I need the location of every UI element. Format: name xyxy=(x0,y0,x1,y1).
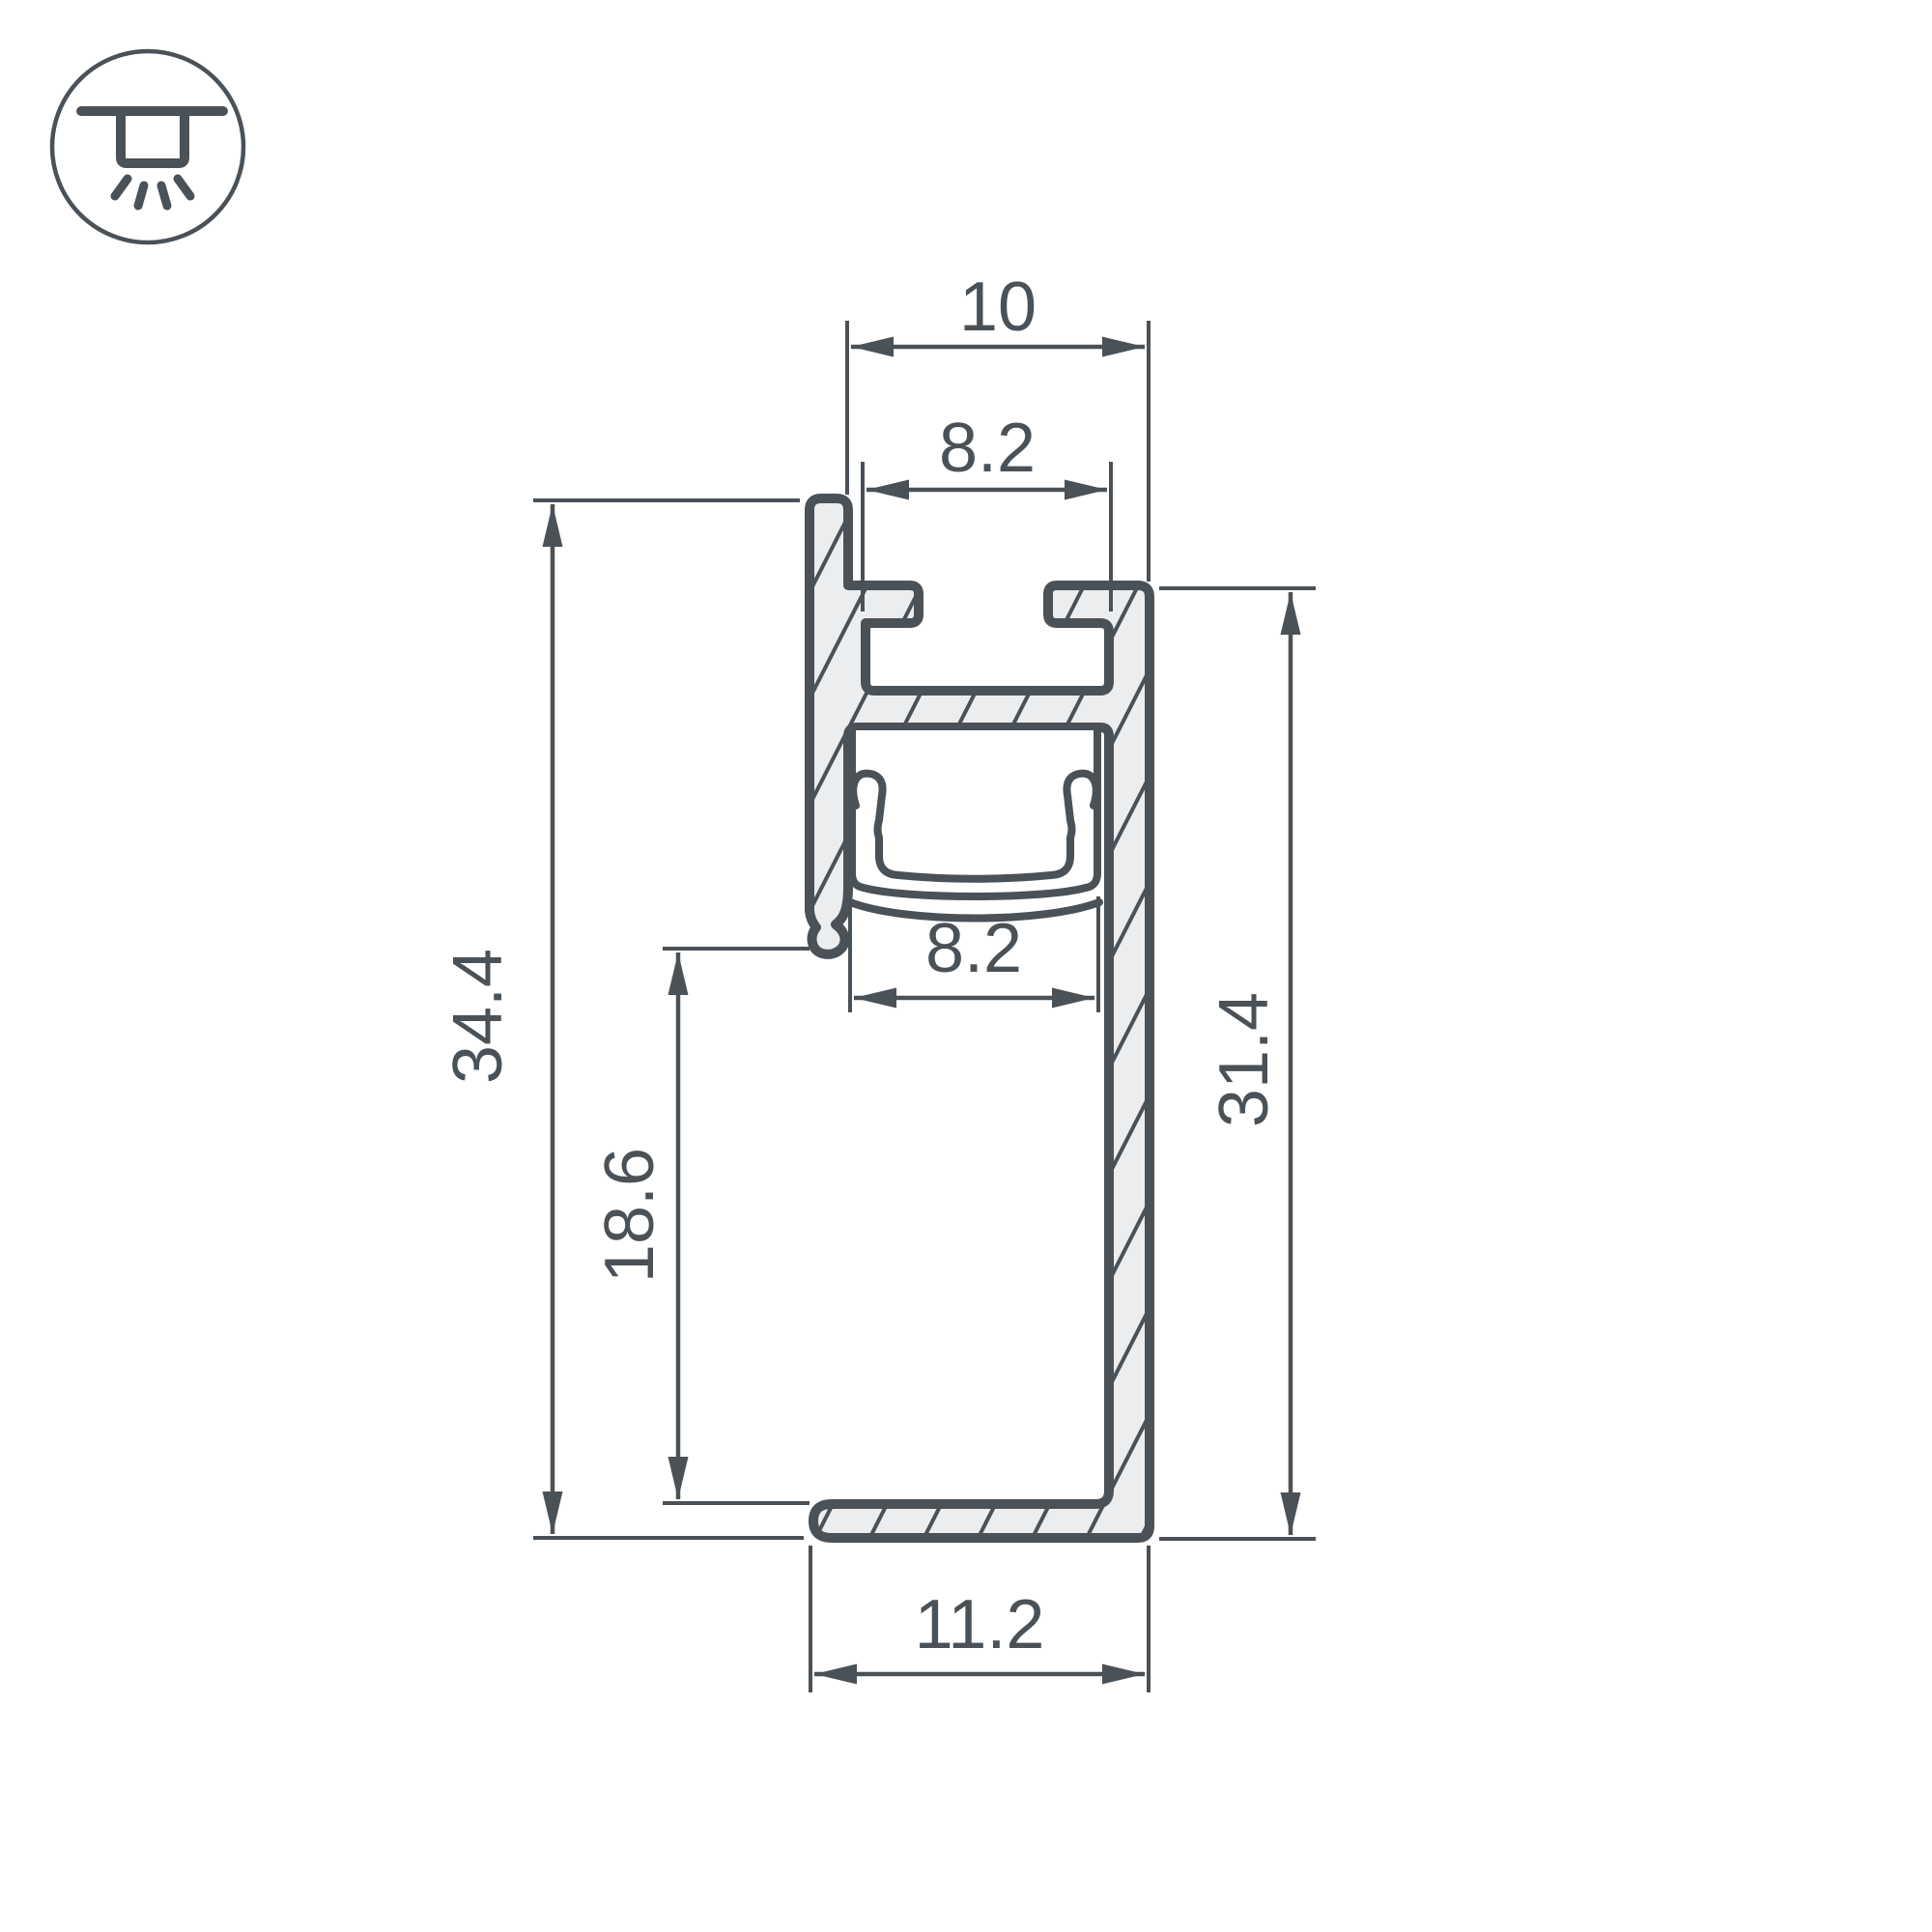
profile-technical-drawing: 10 8.2 8.2 11.2 34.4 18.6 xyxy=(0,0,1932,1932)
drawing-page: 10 8.2 8.2 11.2 34.4 18.6 xyxy=(0,0,1932,1932)
light-rays-icon xyxy=(115,179,190,206)
mount-type-icon xyxy=(52,51,243,242)
icon-circle xyxy=(52,51,243,242)
dimension-label: 8.2 xyxy=(925,910,1022,987)
dimension-inner-height: 18.6 xyxy=(591,949,810,1503)
profile-body xyxy=(810,498,1150,1538)
dimension-label: 10 xyxy=(959,269,1037,346)
dimension-overall-height: 34.4 xyxy=(440,500,804,1538)
profile-hatching xyxy=(810,498,1150,1538)
dimension-label: 34.4 xyxy=(440,949,517,1084)
dimension-label: 11.2 xyxy=(915,1586,1045,1663)
dimension-label: 18.6 xyxy=(591,1148,668,1283)
dimension-label: 8.2 xyxy=(939,410,1036,487)
led-holder-cup xyxy=(850,730,1099,919)
dimension-label: 31.4 xyxy=(1206,992,1283,1127)
dimension-right-height: 31.4 xyxy=(1159,588,1316,1539)
dimension-base-width: 11.2 xyxy=(810,1546,1149,1692)
fixture-box-icon xyxy=(121,111,185,163)
